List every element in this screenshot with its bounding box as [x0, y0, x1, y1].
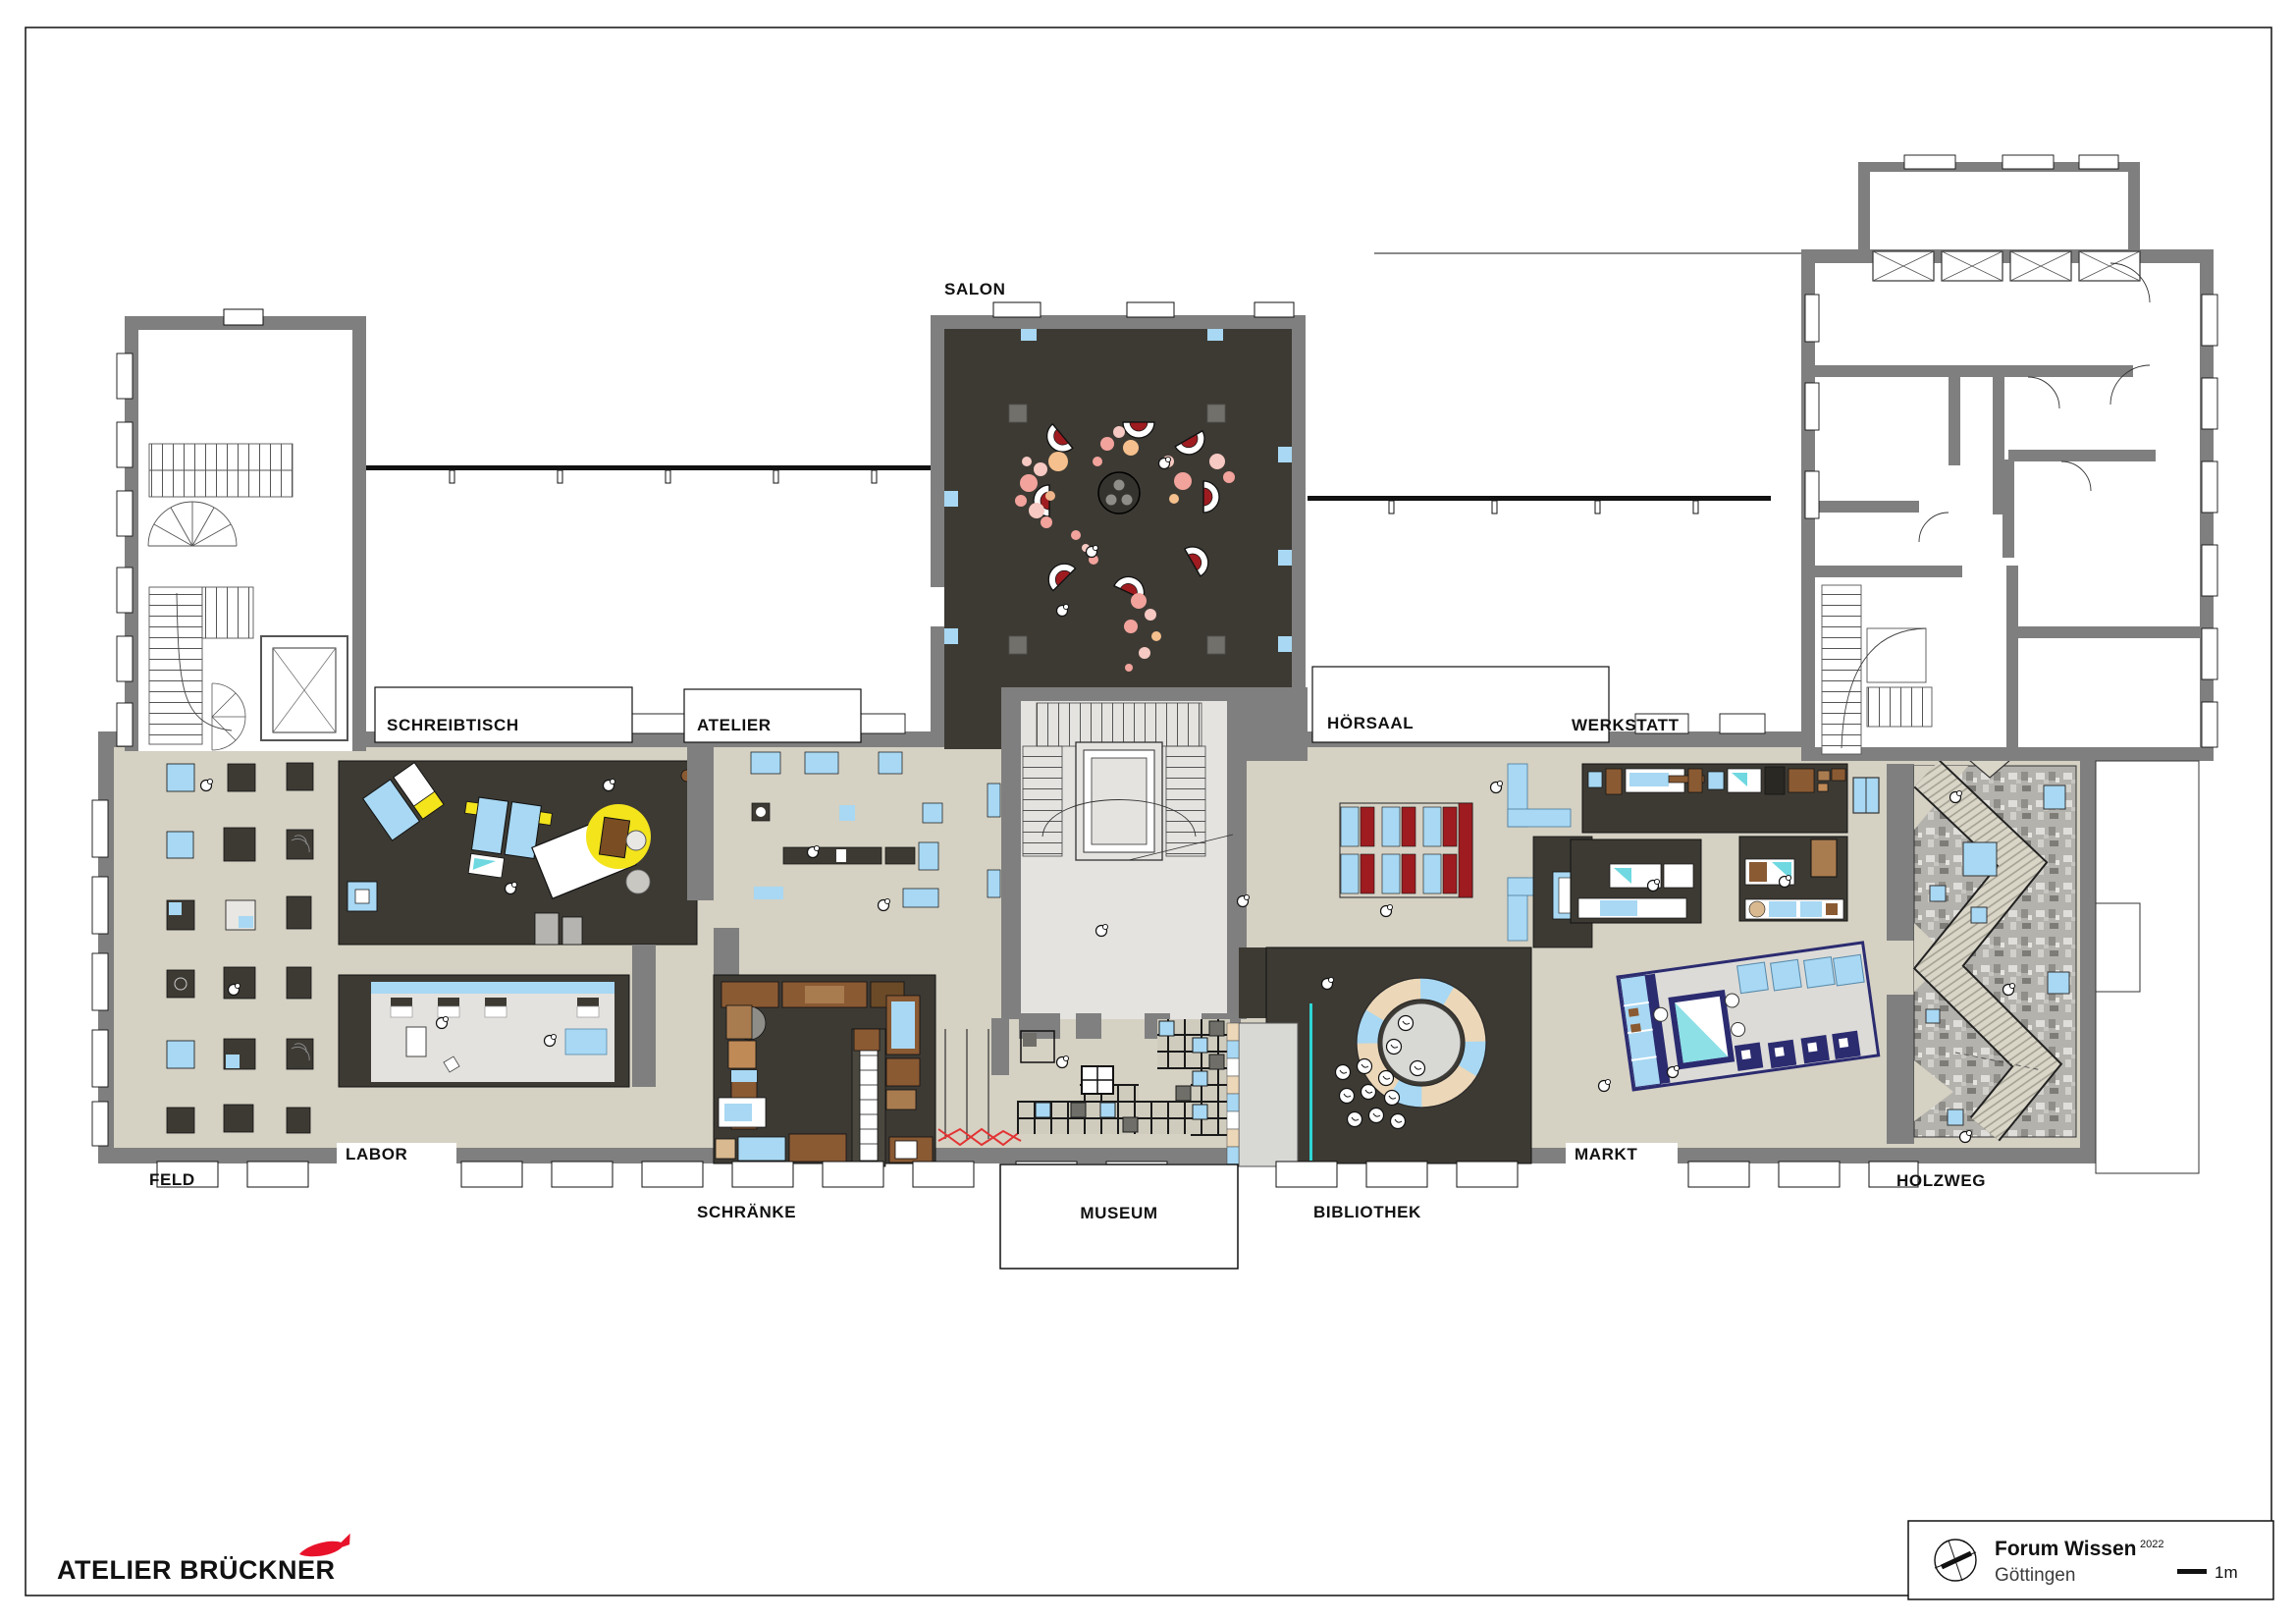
label-holzweg: HOLZWEG [1896, 1171, 1986, 1190]
label-markt: MARKT [1575, 1145, 1637, 1163]
floor-plan-drawing: SALON SCHREIBTISCH ATELIER HÖRSAAL WERKS… [0, 0, 2296, 1623]
project-city: Göttingen [1995, 1565, 2075, 1586]
scale-label: 1m [2215, 1563, 2238, 1582]
project-year: 2022 [2140, 1539, 2163, 1550]
label-bibliothek: BIBLIOTHEK [1313, 1203, 1421, 1221]
label-werkstatt: WERKSTATT [1572, 716, 1680, 734]
checker-strip [1227, 1023, 1239, 1164]
label-box-schreibtisch: SCHREIBTISCH [375, 687, 632, 742]
label-box-atelier: ATELIER [684, 689, 861, 742]
label-atelier: ATELIER [697, 716, 772, 734]
label-feld: FELD [149, 1170, 195, 1189]
room-schreibtisch [339, 761, 697, 945]
room-holzweg [1914, 748, 2076, 1137]
label-salon: SALON [944, 280, 1006, 298]
room-salon [931, 302, 1306, 731]
label-hoersaal: HÖRSAAL [1327, 714, 1414, 732]
bibliothek-ring [1357, 978, 1486, 1108]
scale-bar [2177, 1569, 2207, 1574]
left-wing [117, 309, 366, 751]
floor-plan-sheet: SALON SCHREIBTISCH ATELIER HÖRSAAL WERKS… [0, 0, 2296, 1623]
project-title: Forum Wissen [1995, 1538, 2137, 1560]
label-schraenke: SCHRÄNKE [697, 1203, 796, 1221]
elevator [261, 636, 347, 740]
room-labor [339, 975, 629, 1087]
footer-logo: ATELIER BRÜCKNER [57, 1534, 353, 1585]
window-bay [224, 309, 263, 325]
label-museum: MUSEUM [1080, 1204, 1157, 1222]
label-labor: LABOR [346, 1145, 407, 1163]
label-schreibtisch: SCHREIBTISCH [387, 716, 519, 734]
label-box-hoersaal: HÖRSAAL [1312, 667, 1609, 742]
title-block: Forum Wissen 2022 Göttingen 1m [1908, 1521, 2273, 1599]
logo-text: ATELIER BRÜCKNER [57, 1555, 336, 1585]
room-bibliothek [1227, 947, 1531, 1166]
salon-center-table [1098, 472, 1140, 514]
